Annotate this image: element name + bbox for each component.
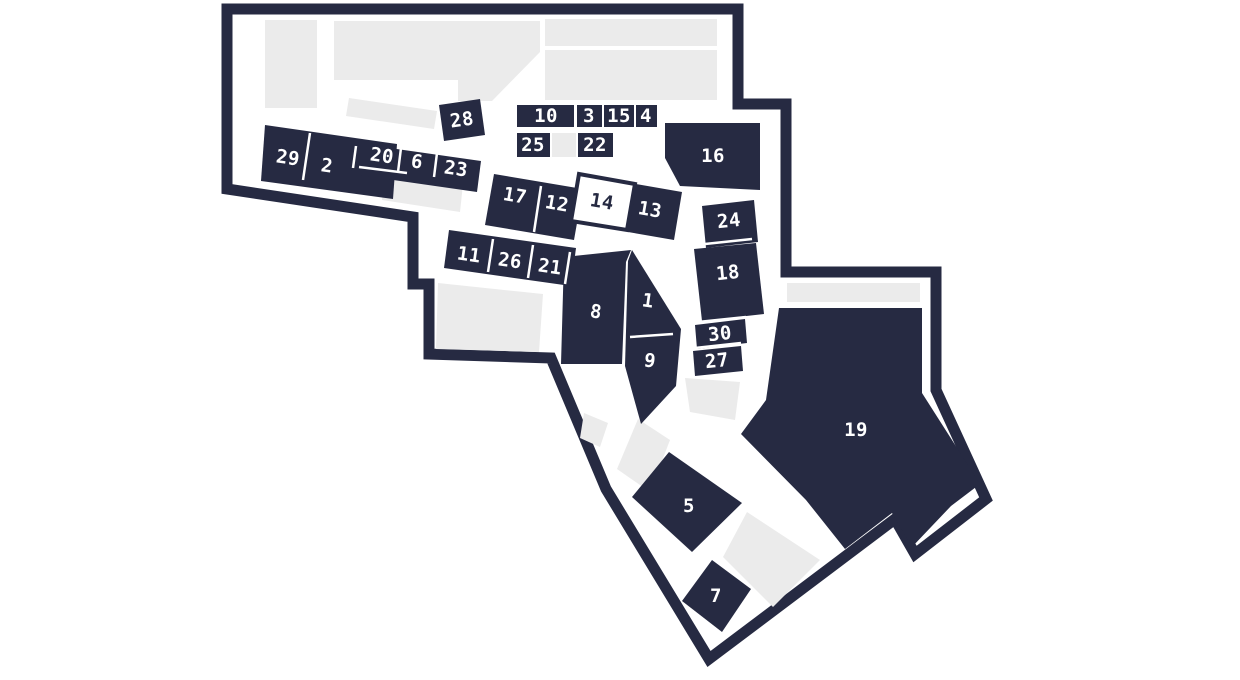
unit-13[interactable] — [628, 184, 682, 240]
common-area — [436, 283, 543, 352]
unit-10[interactable] — [517, 105, 574, 127]
unit-25[interactable] — [517, 133, 550, 157]
common-area — [265, 20, 317, 108]
common-area — [545, 50, 717, 100]
unit-16[interactable] — [665, 123, 760, 190]
unit-8[interactable] — [561, 250, 631, 364]
unit-28[interactable] — [439, 99, 485, 141]
unit-15[interactable] — [604, 105, 634, 127]
unit-22[interactable] — [578, 133, 613, 157]
floor-plan-map: 29 2 20 6 23 28 10 3 15 4 25 22 16 17 12… — [0, 0, 1240, 680]
unit-18[interactable] — [694, 243, 764, 321]
common-area — [334, 21, 458, 80]
common-area — [545, 19, 717, 46]
unit-3[interactable] — [577, 105, 602, 127]
common-area — [787, 283, 920, 302]
common-area — [552, 133, 576, 157]
unit-14-selected[interactable] — [571, 174, 635, 230]
unit-27[interactable] — [693, 346, 743, 376]
unit-4[interactable] — [636, 105, 657, 127]
